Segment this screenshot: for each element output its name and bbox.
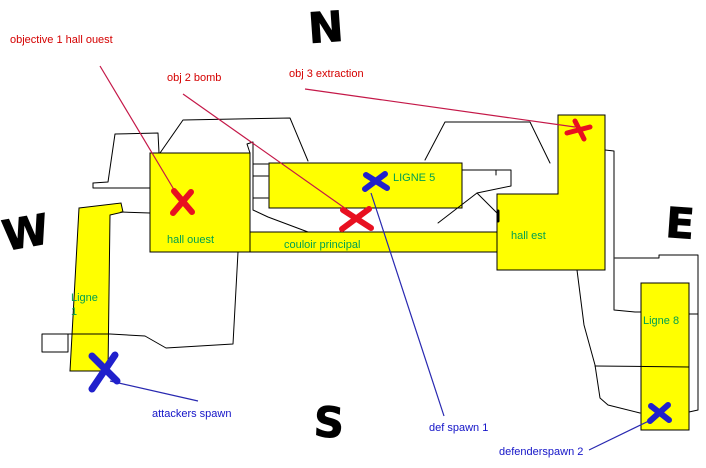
def-spawn1-pointer-line xyxy=(371,193,444,416)
outline-segment xyxy=(121,212,150,213)
map-svg: objective 1 hall ouest obj 2 bomb obj 3 … xyxy=(0,0,706,468)
objective-2-label: obj 2 bomb xyxy=(167,72,221,84)
obj1-pointer-line xyxy=(100,66,179,198)
objective-3-label: obj 3 extraction xyxy=(289,68,364,80)
room-ligne1 xyxy=(70,203,123,371)
room-label-ligne8: Ligne 8 xyxy=(643,315,679,327)
room-hall-est xyxy=(497,115,605,270)
outline-segment xyxy=(93,183,150,188)
def-spawn2-pointer-line xyxy=(589,417,657,450)
outline-segment xyxy=(577,270,640,413)
room-label-hall-est: hall est xyxy=(511,230,546,242)
attackers-spawn-label: attackers spawn xyxy=(152,408,231,420)
attackers-spawn-pointer-line xyxy=(110,381,198,401)
outline-segment xyxy=(605,150,641,312)
obj3-pointer-line xyxy=(305,89,575,127)
outline-segment xyxy=(42,334,68,352)
compass-north: N xyxy=(307,2,345,53)
compass-east: E xyxy=(664,198,696,249)
compass-west: W xyxy=(0,204,53,260)
outline-segment xyxy=(425,122,550,163)
room-label-ligne1-line2: 1 xyxy=(71,306,77,318)
outline-segment xyxy=(477,193,497,213)
room-label-ligne5: LIGNE 5 xyxy=(393,172,435,184)
objective-2-x-marker xyxy=(342,209,371,229)
room-label-couloir: couloir principal xyxy=(284,239,360,251)
def-spawn2-label: defenderspawn 2 xyxy=(499,446,583,458)
compass-south: S xyxy=(313,397,346,448)
paint-map-canvas: objective 1 hall ouest obj 2 bomb obj 3 … xyxy=(0,0,706,468)
room-label-hall-ouest: hall ouest xyxy=(167,234,214,246)
objective-1-label: objective 1 hall ouest xyxy=(10,34,113,46)
def-spawn1-label: def spawn 1 xyxy=(429,422,488,434)
outline-segment xyxy=(93,133,159,183)
room-label-ligne1: Ligne xyxy=(71,292,98,304)
